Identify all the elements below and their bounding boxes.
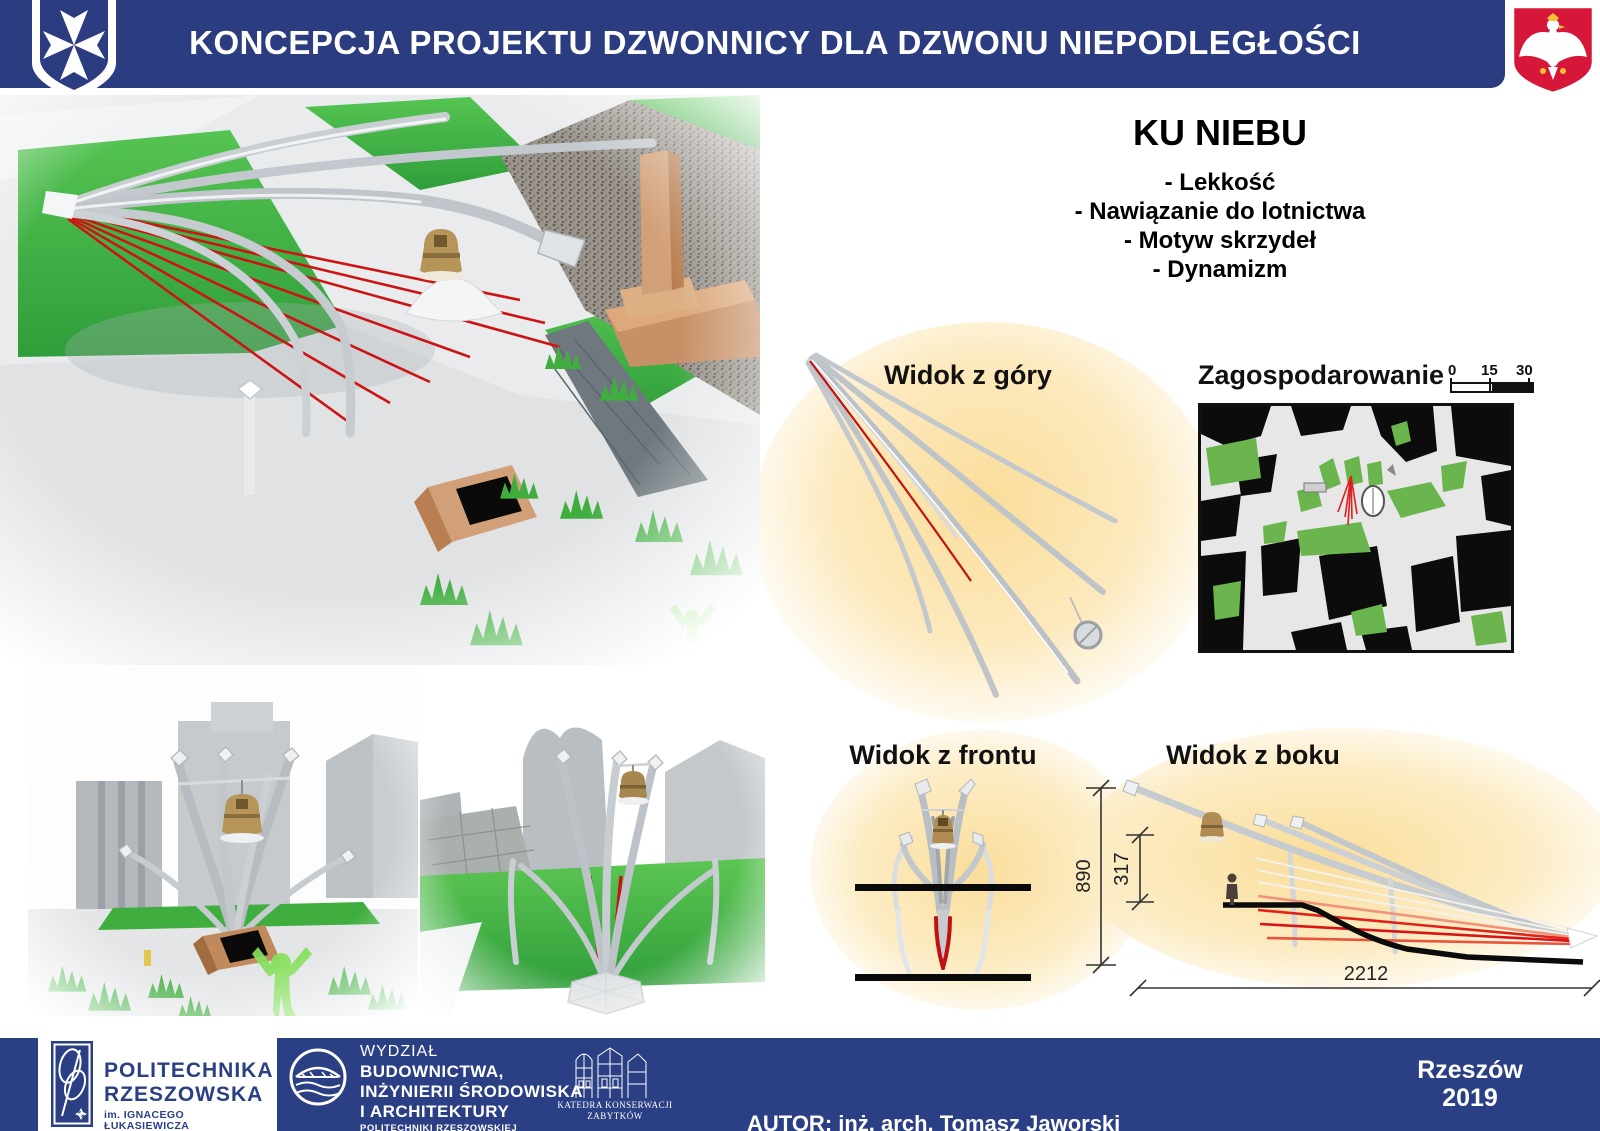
side-view-label: Widok z boku bbox=[1153, 740, 1353, 771]
department-line1: KATEDRA KONSERWACJI bbox=[555, 1100, 675, 1111]
faculty-line3: INŻYNIERII ŚRODOWISKA bbox=[360, 1083, 583, 1100]
scale-0: 0 bbox=[1448, 362, 1456, 379]
render-closeup-view bbox=[420, 680, 765, 1016]
vignette bbox=[0, 95, 760, 665]
rzeszow-crest-icon bbox=[28, 0, 120, 102]
dim-890-label: 890 bbox=[1073, 859, 1095, 892]
site-plan-drawing bbox=[1201, 406, 1511, 650]
faculty-line5: POLITECHNIKI RZESZOWSKIEJ bbox=[360, 1124, 583, 1131]
concept-bullet: - Motyw skrzydeł bbox=[1000, 226, 1440, 255]
department-name: KATEDRA KONSERWACJI ZABYTKÓW bbox=[555, 1100, 675, 1122]
bell-top-detail bbox=[1070, 597, 1101, 649]
front-view-label: Widok z frontu bbox=[843, 740, 1043, 771]
city: Rzeszów bbox=[1380, 1056, 1560, 1084]
year: 2019 bbox=[1380, 1084, 1560, 1112]
vignette bbox=[420, 680, 765, 1016]
scale-bar-body bbox=[1450, 382, 1534, 393]
ground-line-lower bbox=[855, 974, 1031, 981]
fan-arms bbox=[808, 355, 1115, 695]
page-title: KONCEPCJA PROJEKTU DZWONNICY DLA DZWONU … bbox=[170, 24, 1380, 62]
main-render-perspective bbox=[0, 95, 760, 665]
dimension-lines: 890 317 2212 bbox=[1056, 756, 1600, 1000]
university-name-line2: RZESZOWSKA bbox=[104, 1084, 272, 1105]
faculty-line2: BUDOWNICTWA, bbox=[360, 1063, 583, 1080]
concept-block: KU NIEBU - Lekkość - Nawiązanie do lotni… bbox=[1000, 112, 1440, 284]
scale-bar-filled bbox=[1492, 384, 1532, 391]
red-cable bbox=[810, 361, 971, 581]
dim-2212-label: 2212 bbox=[1344, 963, 1389, 985]
scale-numbers: 0 15 30 bbox=[1448, 362, 1534, 378]
faculty-line4: I ARCHITEKTURY bbox=[360, 1103, 583, 1120]
front-view-drawing bbox=[843, 762, 1043, 992]
city-year: Rzeszów 2019 bbox=[1380, 1056, 1560, 1112]
site-plan-map bbox=[1198, 403, 1514, 653]
concept-title: KU NIEBU bbox=[1000, 112, 1440, 154]
department-line2: ZABYTKÓW bbox=[555, 1111, 675, 1122]
author-line: AUTOR: inż. arch. Tomasz Jaworski bbox=[747, 1110, 1282, 1131]
author-block: AUTOR: inż. arch. Tomasz Jaworski PROMOT… bbox=[747, 1056, 1282, 1131]
faculty-logo-icon bbox=[288, 1047, 348, 1107]
concept-bullet: - Dynamizm bbox=[1000, 255, 1440, 284]
prz-logo-icon bbox=[50, 1040, 94, 1128]
map-scale-bar: 0 15 30 bbox=[1448, 362, 1534, 396]
university-name-line3: im. IGNACEGO ŁUKASIEWICZA bbox=[104, 1110, 272, 1131]
vignette bbox=[28, 666, 418, 1016]
render-street-view bbox=[28, 666, 418, 1016]
scale-15: 15 bbox=[1481, 362, 1498, 379]
scale-30: 30 bbox=[1516, 362, 1533, 379]
concept-bullet: - Nawiązanie do lotnictwa bbox=[1000, 197, 1440, 226]
faculty-line1: WYDZIAŁ bbox=[360, 1044, 583, 1060]
university-name-line1: POLITECHNIKA bbox=[104, 1060, 272, 1081]
dim-317-label: 317 bbox=[1111, 852, 1133, 885]
concept-bullet: - Lekkość bbox=[1000, 168, 1440, 197]
faculty-name: WYDZIAŁ BUDOWNICTWA, INŻYNIERII ŚRODOWIS… bbox=[360, 1044, 583, 1131]
ground-line-upper bbox=[855, 884, 1031, 891]
site-plan-label: Zagospodarowanie bbox=[1198, 360, 1448, 391]
university-name: POLITECHNIKA RZESZOWSKA im. IGNACEGO ŁUK… bbox=[104, 1060, 272, 1131]
department-logo-icon bbox=[572, 1046, 648, 1098]
poland-eagle-icon bbox=[1510, 5, 1596, 95]
poster: KONCEPCJA PROJEKTU DZWONNICY DLA DZWONU … bbox=[0, 0, 1600, 1131]
top-view-label: Widok z góry bbox=[838, 360, 1098, 391]
